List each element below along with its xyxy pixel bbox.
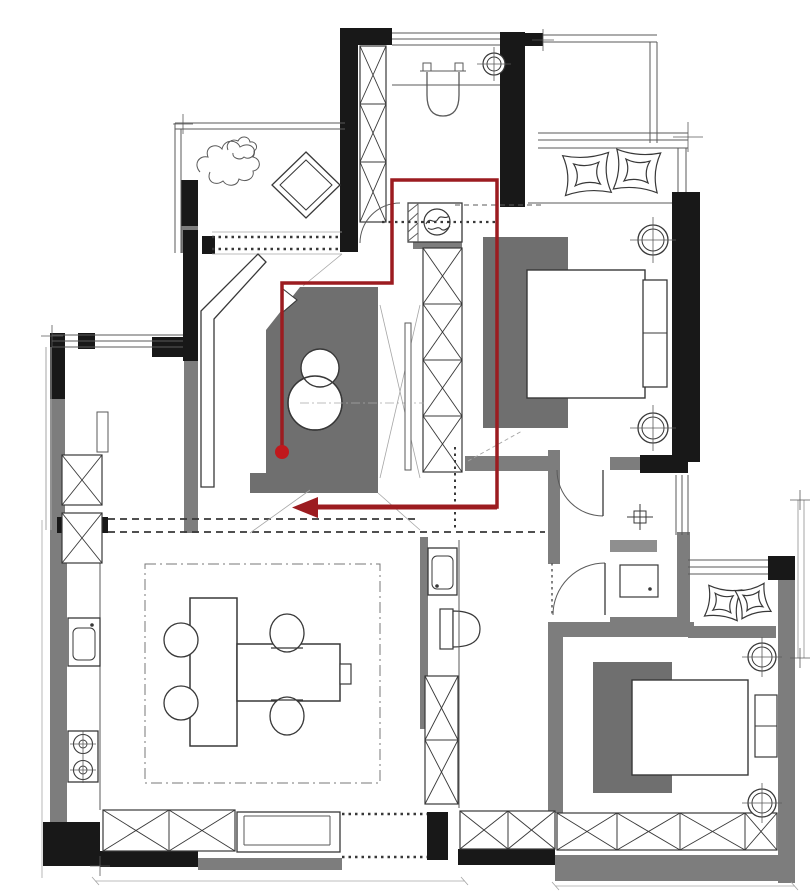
mid-south-post <box>427 812 448 860</box>
bedroom2-wardrobe <box>557 813 777 850</box>
floor-plan-canvas <box>0 0 810 893</box>
sw-corner-wall <box>43 822 100 866</box>
sofa-bench <box>237 812 340 852</box>
bath-vanity <box>620 565 658 597</box>
bath-west-stub <box>548 540 560 564</box>
westbalcony-door-panel <box>97 412 108 452</box>
east-wall-gray <box>778 578 795 883</box>
dining-chair-4 <box>270 697 304 735</box>
pillow-master-2 <box>613 149 660 193</box>
desk-circle-small <box>301 349 339 387</box>
living-south-wall-gray <box>198 858 342 870</box>
dining-chair-1 <box>164 623 198 657</box>
bath-vanity-drain <box>648 587 652 591</box>
balcony-door-post <box>202 236 215 254</box>
bay2-ne-post <box>768 556 795 580</box>
bedroom2-west-wall <box>548 637 563 813</box>
dining-table-bump <box>340 664 351 684</box>
wc-north-wall <box>465 456 557 471</box>
corridor-east-wall <box>548 450 560 542</box>
balconytl-west-post <box>181 180 198 226</box>
dining-chair-2 <box>164 686 198 720</box>
dining-table-long <box>190 598 237 746</box>
bath-south-wall <box>610 617 690 635</box>
living-south-wall-black <box>100 851 198 867</box>
route-start-dot <box>275 445 289 459</box>
toilet-tank <box>440 609 453 649</box>
south-wall-right-gray <box>555 855 795 881</box>
bath-shelf <box>610 540 657 552</box>
dining-chair-3 <box>270 614 304 652</box>
bath-north-wall-gray <box>610 457 642 470</box>
bedroom2-mattress <box>632 680 748 775</box>
entry-west-wall <box>340 28 358 252</box>
kitchen-sink-faucet <box>90 623 94 627</box>
master-mattress <box>527 270 645 398</box>
midcolumn-door-panel <box>405 323 411 470</box>
kitchen-west-wall-gray <box>50 534 67 824</box>
floor-plan-page <box>0 0 810 893</box>
pillow-master-1 <box>563 152 612 195</box>
hall-sink-faucet <box>435 584 439 588</box>
entry-north-wall <box>340 28 392 45</box>
master-south-wall <box>640 455 688 473</box>
corridor-south-wall <box>458 849 555 865</box>
study-west-wall-gray <box>184 360 198 533</box>
master-east-wall <box>672 192 700 462</box>
master-north-wall <box>500 33 543 46</box>
bay2-inner-sill <box>688 626 776 638</box>
